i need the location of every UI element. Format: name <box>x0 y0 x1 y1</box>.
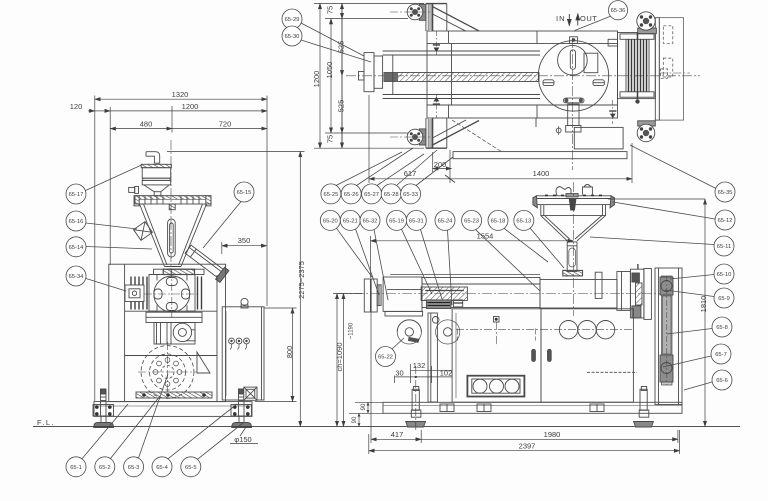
svg-text:65-13: 65-13 <box>516 218 531 224</box>
svg-text:65-17: 65-17 <box>69 192 84 198</box>
svg-text:65-2: 65-2 <box>99 465 111 471</box>
svg-text:480: 480 <box>140 119 153 128</box>
svg-text:102: 102 <box>440 369 453 378</box>
svg-text:65-36: 65-36 <box>611 8 626 14</box>
svg-text:ch=1090: ch=1090 <box>335 343 344 372</box>
svg-text:1200: 1200 <box>312 71 321 88</box>
svg-text:90: 90 <box>361 403 367 410</box>
svg-text:65-30: 65-30 <box>285 34 300 40</box>
svg-text:1400: 1400 <box>533 169 550 178</box>
svg-text:65-34: 65-34 <box>69 274 85 280</box>
svg-text:90: 90 <box>352 416 358 423</box>
svg-text:65-3: 65-3 <box>128 465 140 471</box>
svg-text:65-6: 65-6 <box>716 378 728 384</box>
svg-text:65-16: 65-16 <box>69 219 84 225</box>
svg-text:65-27: 65-27 <box>364 192 379 198</box>
svg-text:65-24: 65-24 <box>438 218 454 224</box>
svg-text:75: 75 <box>326 135 335 143</box>
svg-text:65-19: 65-19 <box>389 218 404 224</box>
svg-text:132: 132 <box>413 361 426 370</box>
svg-text:65-22: 65-22 <box>378 355 393 361</box>
svg-text:OUT: OUT <box>580 14 597 23</box>
svg-text:65-1: 65-1 <box>70 465 82 471</box>
svg-text:1980: 1980 <box>544 430 561 439</box>
svg-text:65-18: 65-18 <box>491 218 506 224</box>
svg-text:65-7: 65-7 <box>715 352 727 358</box>
svg-text:525: 525 <box>337 100 346 113</box>
svg-text:120: 120 <box>70 102 83 111</box>
svg-text:φ150: φ150 <box>234 435 251 444</box>
svg-text:720: 720 <box>219 119 232 128</box>
svg-text:65-14: 65-14 <box>69 245 85 251</box>
svg-text:65-25: 65-25 <box>323 192 338 198</box>
svg-text:30: 30 <box>395 369 403 378</box>
svg-text:417: 417 <box>391 430 404 439</box>
svg-text:1050: 1050 <box>325 62 334 79</box>
svg-text:800: 800 <box>285 346 294 359</box>
svg-text:65-15: 65-15 <box>237 190 252 196</box>
svg-text:65-29: 65-29 <box>285 17 300 23</box>
svg-text:IN: IN <box>556 14 566 23</box>
svg-text:F.L.: F.L. <box>37 418 55 427</box>
svg-text:2275~2375: 2275~2375 <box>297 261 306 299</box>
svg-text:75: 75 <box>326 6 335 14</box>
svg-text:65-33: 65-33 <box>403 192 418 198</box>
svg-text:65-9: 65-9 <box>718 296 730 302</box>
svg-text:200: 200 <box>434 160 447 169</box>
svg-text:65-10: 65-10 <box>717 272 732 278</box>
svg-text:65-5: 65-5 <box>185 465 197 471</box>
svg-text:65-23: 65-23 <box>464 218 479 224</box>
svg-text:2397: 2397 <box>519 442 536 451</box>
svg-text:65-4: 65-4 <box>156 465 168 471</box>
svg-text:1810: 1810 <box>699 296 708 313</box>
svg-text:65-11: 65-11 <box>717 244 731 250</box>
svg-text:65-8: 65-8 <box>716 325 728 331</box>
svg-text:65-26: 65-26 <box>344 192 359 198</box>
svg-text:65-32: 65-32 <box>363 218 378 224</box>
svg-text:65-12: 65-12 <box>718 218 733 224</box>
svg-text:~1190: ~1190 <box>349 322 355 339</box>
svg-text:65-35: 65-35 <box>718 190 733 196</box>
svg-text:350: 350 <box>238 236 251 245</box>
svg-text:1200: 1200 <box>182 102 199 111</box>
svg-text:65-20: 65-20 <box>323 218 338 224</box>
svg-text:65-31: 65-31 <box>409 218 424 224</box>
svg-text:65-21: 65-21 <box>343 218 358 224</box>
svg-text:1320: 1320 <box>172 90 189 99</box>
svg-text:65-28: 65-28 <box>384 192 399 198</box>
